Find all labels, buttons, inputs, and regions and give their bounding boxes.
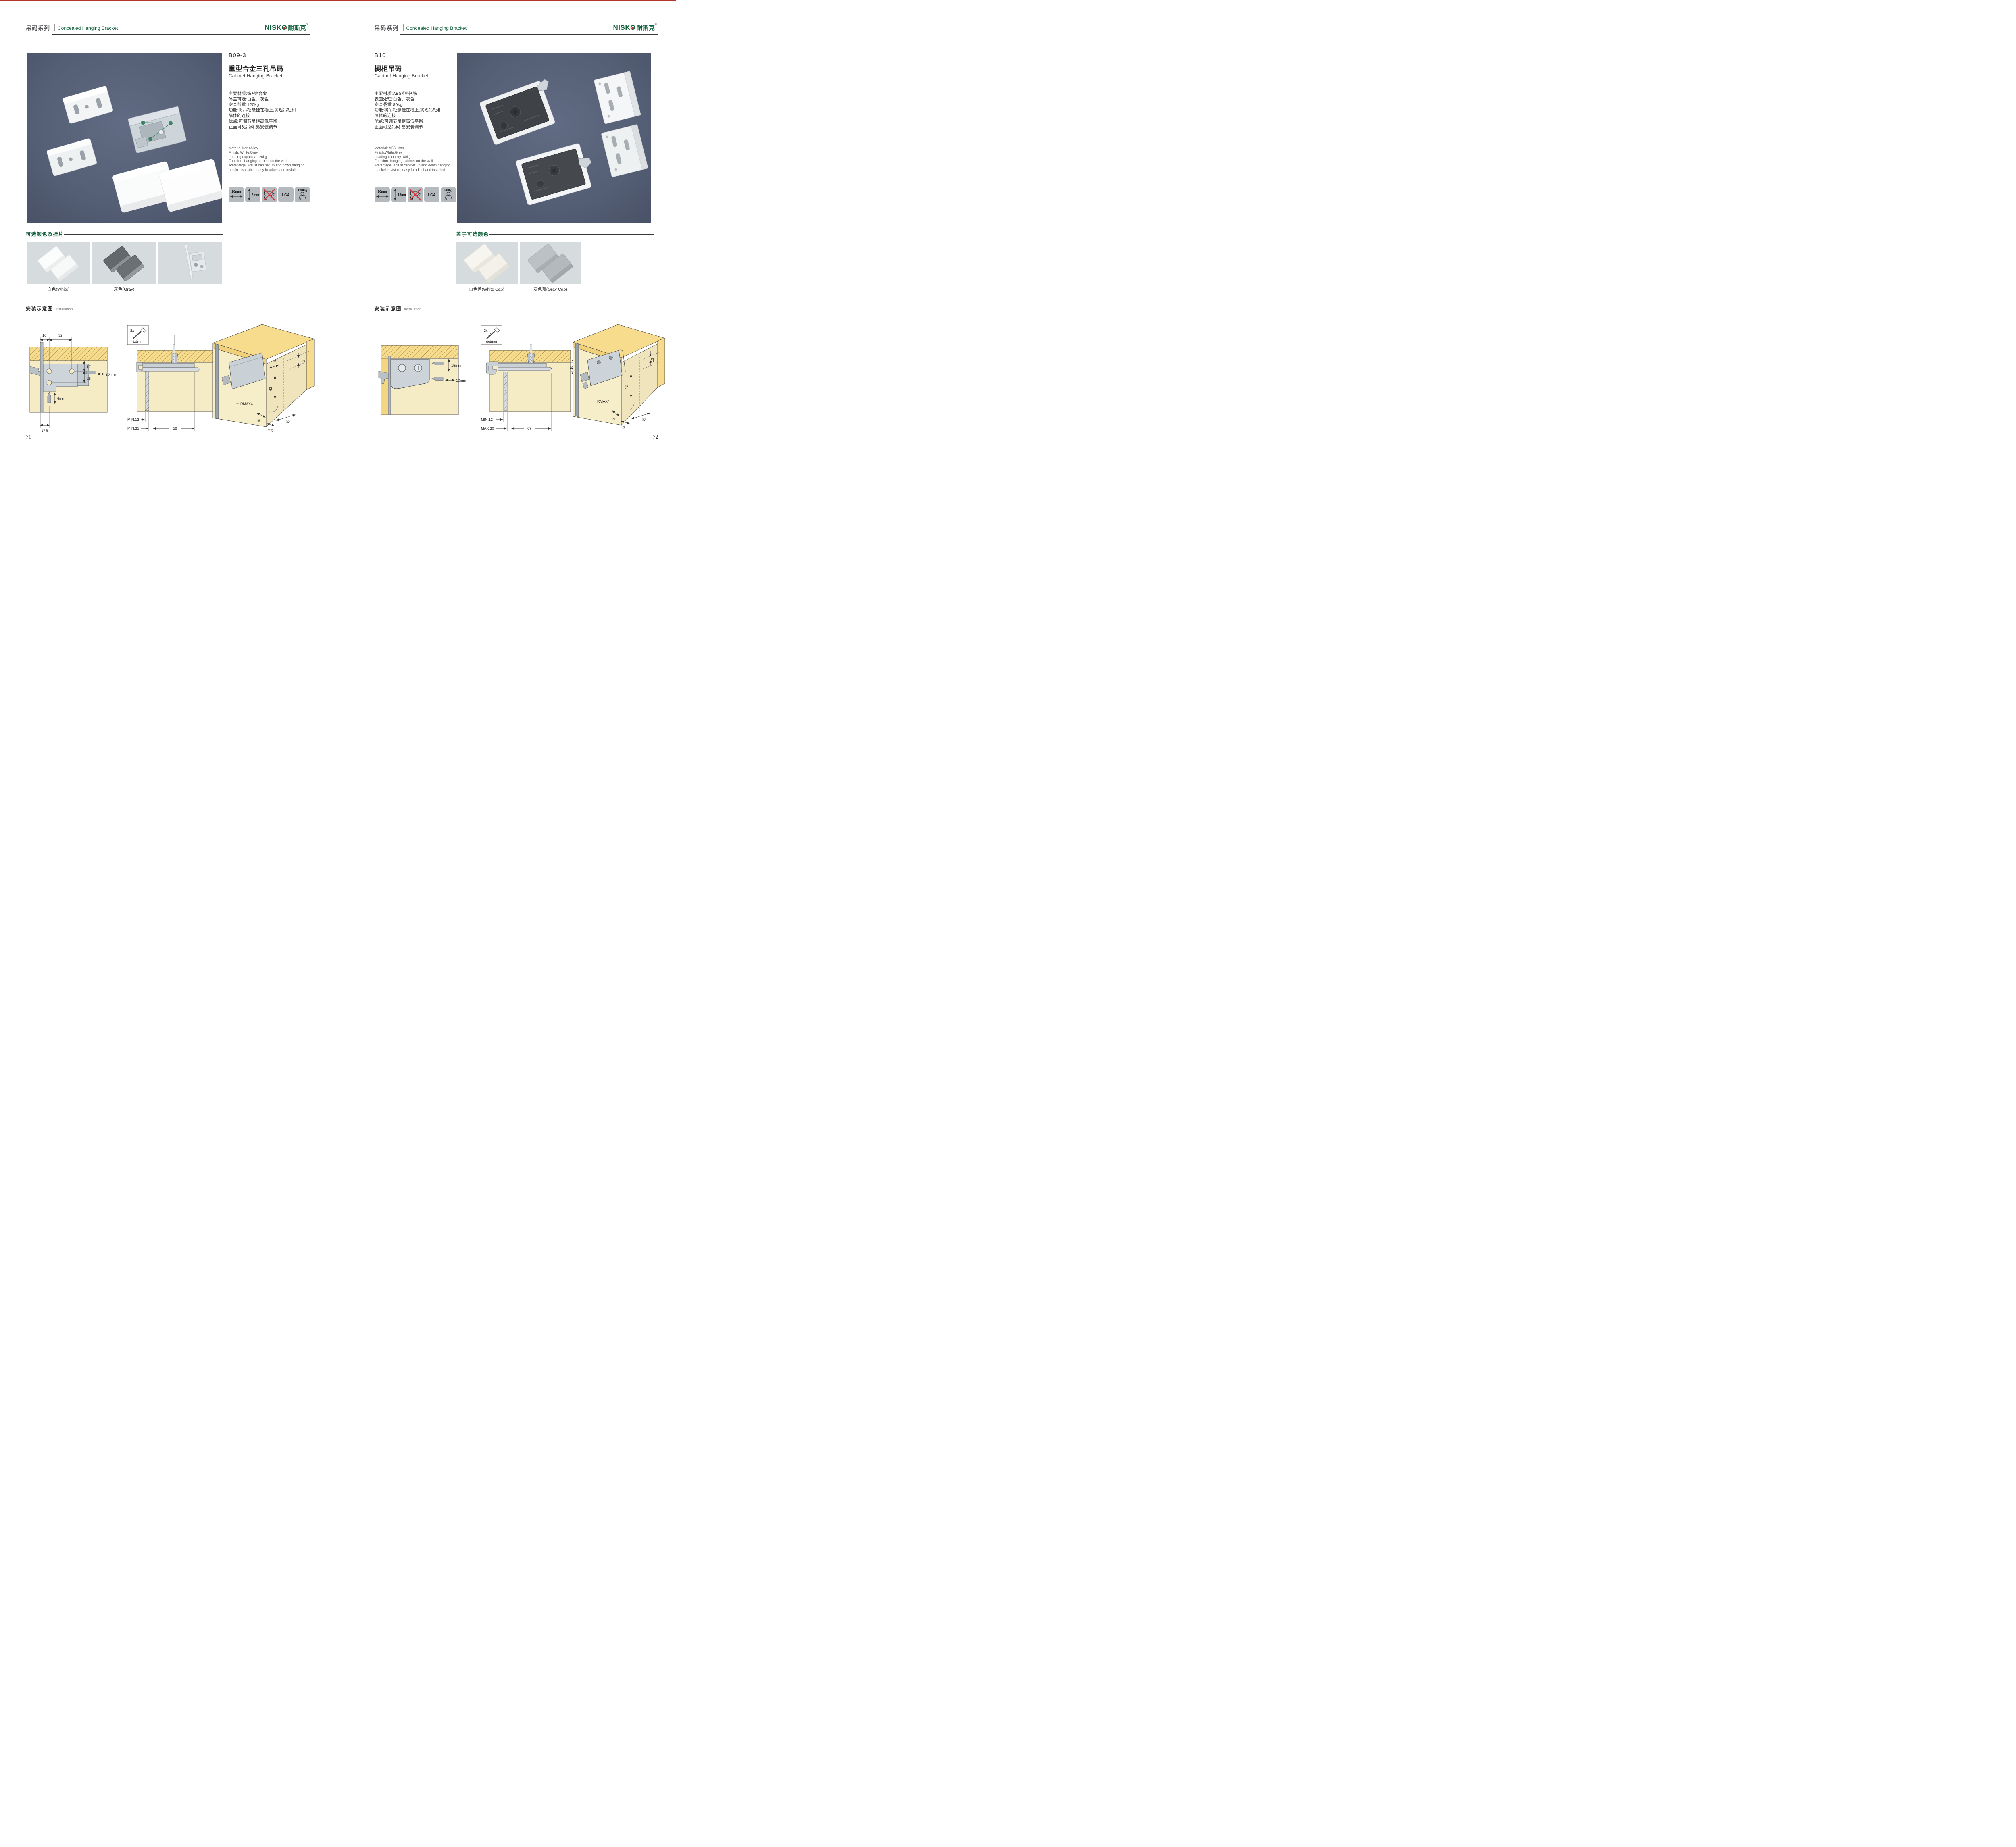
spec-icon-tile bbox=[262, 187, 277, 202]
product-specs-cn: 主要材质:铁+锌合金 外盖可选:白色、灰色 安全载重:120kg 功能:将吊柜悬… bbox=[229, 91, 296, 130]
product-name-en: Cabinet Hanging Bracket bbox=[375, 73, 428, 79]
spec-line: 优点:可调节吊柜高低平衡 bbox=[375, 119, 442, 125]
spec-line: 墙体的连接 bbox=[375, 113, 442, 119]
installation-diagram-side: 2x Φ4mm 12 MIN.12 bbox=[127, 320, 223, 441]
page-number: 71 bbox=[26, 434, 31, 440]
series-title-en: Concealed Hanging Bracket bbox=[58, 25, 118, 31]
product-specs-cn: 主要材质:ABS塑料+铁 表面处理:白色、灰色 安全载重:80kg 功能:将吊柜… bbox=[375, 91, 442, 130]
colors-section-rule bbox=[64, 234, 223, 235]
spec-line: Finish:White,Grey bbox=[375, 150, 450, 155]
spec-icon-tile bbox=[408, 187, 423, 202]
product-model: B10 bbox=[375, 52, 386, 59]
lga-icon: LGA bbox=[278, 187, 294, 202]
svg-text:15mm: 15mm bbox=[398, 193, 406, 197]
svg-text:MIN.12: MIN.12 bbox=[481, 418, 493, 422]
header-rule bbox=[52, 34, 310, 35]
series-title-cn: 吊码系列 bbox=[375, 24, 399, 32]
installation-diagram-front: 15mm 10mm bbox=[377, 320, 470, 441]
spec-icon-tile: LGA bbox=[424, 187, 439, 202]
installation-title-cn: 安装示意图 bbox=[375, 306, 402, 312]
spec-line: Function: hanging cabinet on the wall bbox=[229, 159, 304, 163]
spec-line: 主要材质:ABS塑料+铁 bbox=[375, 91, 442, 97]
brand-logo-en: NISKO bbox=[613, 24, 636, 31]
spec-line: 优点:可调节吊柜高低平衡 bbox=[229, 119, 296, 125]
catalog-spread: 吊码系列 Concealed Hanging Bracket NISKO耐斯克® bbox=[0, 0, 676, 462]
brand-logo-cn: 耐斯克 bbox=[637, 25, 655, 31]
spec-icon-row: 20mm 6mm bbox=[229, 187, 310, 202]
spec-line: Finish: White,Grey bbox=[229, 150, 304, 155]
installation-title-cn: 安装示意图 bbox=[26, 306, 53, 312]
spec-line: 正面可见吊码,易安装调节 bbox=[229, 125, 296, 130]
swatch-label: 白色(White) bbox=[27, 286, 90, 292]
back-panel bbox=[145, 371, 149, 411]
svg-text:67: 67 bbox=[527, 426, 531, 431]
spec-icon-tile: 10mm bbox=[375, 187, 390, 202]
registered-mark: ® bbox=[306, 23, 308, 26]
spec-icon-tile: 20mm bbox=[229, 187, 244, 202]
spec-icon-row: 10mm 15mm bbox=[375, 187, 456, 202]
svg-text:32: 32 bbox=[58, 333, 62, 337]
svg-text:17.5: 17.5 bbox=[41, 428, 48, 433]
svg-text:10mm: 10mm bbox=[377, 190, 387, 193]
svg-text:58: 58 bbox=[173, 426, 177, 431]
colors-section-rule bbox=[489, 234, 654, 235]
spec-line: 功能:将吊柜悬挂在墙上,实现吊柜和 bbox=[375, 108, 442, 113]
header-rule bbox=[400, 34, 658, 35]
swatch-label: 白色盖(White Cap) bbox=[456, 286, 518, 292]
section-divider bbox=[26, 302, 310, 302]
width-arrow-icon: 20mm bbox=[229, 187, 244, 202]
spec-icon-tile: 6mm bbox=[245, 187, 260, 202]
installation-heading: 安装示意图Installation bbox=[375, 305, 422, 312]
installation-title-en: Installation bbox=[404, 307, 421, 311]
svg-text:MIN.35: MIN.35 bbox=[127, 426, 139, 431]
spec-line: bracket is visible, easy to adjust and i… bbox=[375, 168, 450, 172]
spec-line: 墙体的连接 bbox=[229, 113, 296, 119]
svg-text:6mm: 6mm bbox=[57, 397, 65, 401]
product-photo-b09-3 bbox=[27, 53, 222, 223]
svg-text:42: 42 bbox=[625, 385, 629, 389]
svg-text:16: 16 bbox=[272, 359, 276, 363]
series-separator bbox=[403, 24, 404, 31]
svg-text:2x: 2x bbox=[130, 329, 134, 333]
height-arrow-icon: 15mm bbox=[391, 187, 406, 202]
load-capacity-icon: 120Kg bbox=[295, 187, 310, 202]
brand-logo: NISKO耐斯克® bbox=[264, 23, 308, 32]
spec-line: 表面处理:白色、灰色 bbox=[375, 97, 442, 102]
svg-text:RMAX4: RMAX4 bbox=[597, 399, 610, 404]
series-title-cn: 吊码系列 bbox=[26, 24, 50, 32]
spec-line: Advantage: Adjust cabinet up and down ha… bbox=[375, 163, 450, 168]
svg-text:MIN.12: MIN.12 bbox=[127, 418, 139, 422]
product-name-cn: 重型合金三孔吊码 bbox=[229, 63, 283, 73]
spec-icon-tile: LGA bbox=[278, 187, 294, 202]
series-separator bbox=[54, 24, 55, 31]
svg-text:MAX.30: MAX.30 bbox=[481, 426, 494, 431]
spec-line: 安全载重:120kg bbox=[229, 102, 296, 108]
svg-text:32: 32 bbox=[641, 418, 646, 422]
svg-text:16: 16 bbox=[42, 333, 46, 337]
svg-text:2x: 2x bbox=[484, 329, 488, 333]
svg-text:Φ4mm: Φ4mm bbox=[486, 340, 497, 344]
svg-text:17: 17 bbox=[621, 426, 625, 430]
product-name-cn: 橱柜吊码 bbox=[375, 63, 402, 73]
svg-text:13: 13 bbox=[650, 358, 654, 362]
no-drill-icon bbox=[262, 187, 277, 202]
back-panel bbox=[504, 372, 507, 411]
wall-rail-strip bbox=[215, 344, 219, 419]
svg-text:42: 42 bbox=[269, 387, 273, 391]
spec-line: Material:Iron+Alloy bbox=[229, 146, 304, 150]
spec-line: 安全载重:80kg bbox=[375, 102, 442, 108]
installation-diagram-side: 2x Φ4mm 18 MIN.12 bbox=[480, 320, 575, 441]
spec-line: 外盖可选:白色、灰色 bbox=[229, 97, 296, 102]
product-specs-en: Material:Iron+Alloy Finish: White,Grey L… bbox=[229, 146, 304, 172]
swatch-label: 灰色(Gray) bbox=[92, 286, 156, 292]
wall-rail-strip bbox=[40, 342, 43, 412]
svg-text:120Kg: 120Kg bbox=[298, 189, 307, 192]
svg-text:RMAX4: RMAX4 bbox=[240, 402, 253, 406]
svg-text:Φ4mm: Φ4mm bbox=[132, 340, 143, 344]
svg-text:17: 17 bbox=[87, 365, 91, 369]
width-arrow-icon: 10mm bbox=[375, 187, 390, 202]
spec-line: Loading capacity: 120kg bbox=[229, 155, 304, 159]
svg-text:6mm: 6mm bbox=[252, 193, 259, 197]
color-swatch-white-cap bbox=[456, 242, 518, 284]
swatch-label: 灰色盖(Gray Cap) bbox=[520, 286, 581, 292]
svg-text:15mm: 15mm bbox=[451, 364, 461, 368]
swatch-hanging-plate bbox=[158, 242, 222, 284]
product-name-en: Cabinet Hanging Bracket bbox=[229, 73, 282, 79]
spec-line: Material: ABS+iron bbox=[375, 146, 450, 150]
spec-line: 正面可见吊码,易安装调节 bbox=[375, 125, 442, 130]
wall-rail-strip bbox=[388, 356, 391, 415]
spec-line: Function: hanging cabinet on the wall bbox=[375, 159, 450, 163]
colors-section-title: 可选颜色及挂片 bbox=[26, 231, 64, 237]
spec-line: Advantage: Adjust cabinet up and down ha… bbox=[229, 163, 304, 168]
svg-text:25: 25 bbox=[87, 376, 91, 381]
catalog-page-right: 吊码系列 Concealed Hanging Bracket NISKO耐斯克®… bbox=[338, 0, 677, 462]
series-title-en: Concealed Hanging Bracket bbox=[406, 25, 467, 31]
catalog-page-left: 吊码系列 Concealed Hanging Bracket NISKO耐斯克® bbox=[0, 0, 338, 462]
svg-text:LGA: LGA bbox=[282, 193, 290, 197]
svg-text:20mm: 20mm bbox=[231, 190, 241, 193]
page-number: 72 bbox=[646, 434, 658, 440]
no-drill-icon bbox=[408, 187, 423, 202]
bracket-rail bbox=[498, 363, 546, 367]
height-arrow-icon: 6mm bbox=[245, 187, 260, 202]
spec-line: 功能:将吊柜悬挂在墙上,实现吊柜和 bbox=[229, 108, 296, 113]
section-divider bbox=[375, 302, 658, 302]
svg-text:20mm: 20mm bbox=[106, 372, 116, 376]
svg-text:19: 19 bbox=[611, 417, 615, 421]
lga-icon: LGA bbox=[424, 187, 439, 202]
installation-title-en: Installation bbox=[56, 307, 73, 311]
svg-text:80Kg: 80Kg bbox=[444, 189, 452, 192]
spec-line: Loading capacity: 80kg bbox=[375, 155, 450, 159]
bracket-rail bbox=[143, 363, 194, 368]
color-swatch-gray-cap bbox=[520, 242, 581, 284]
wall-rail-strip bbox=[575, 343, 579, 417]
installation-diagram-front: 20mm 16 32 17 25 6mm 17.5 bbox=[24, 320, 121, 441]
color-swatch-gray bbox=[92, 242, 156, 284]
spec-icon-tile: 80Kg bbox=[441, 187, 456, 202]
installation-heading: 安装示意图Installation bbox=[26, 305, 73, 312]
registered-mark: ® bbox=[655, 23, 657, 26]
svg-text:17: 17 bbox=[301, 360, 305, 364]
product-photo-b10 bbox=[457, 53, 651, 223]
product-specs-en: Material: ABS+iron Finish:White,Grey Loa… bbox=[375, 146, 450, 172]
svg-text:10mm: 10mm bbox=[456, 379, 466, 383]
brand-logo: NISKO耐斯克® bbox=[613, 23, 657, 32]
installation-diagram-perspective: 13 42 RMAX4 19 17 32 bbox=[571, 320, 667, 437]
brand-logo-cn: 耐斯克 bbox=[288, 25, 306, 31]
spec-icon-tile: 15mm bbox=[391, 187, 406, 202]
brand-logo-en: NISKO bbox=[264, 24, 287, 31]
colors-section-title: 盖子可选颜色 bbox=[456, 231, 489, 237]
spec-line: 主要材质:铁+锌合金 bbox=[229, 91, 296, 97]
installation-diagram-perspective: 16 17 42 RMAX4 16 32 17.5 bbox=[210, 320, 317, 439]
load-capacity-icon: 80Kg bbox=[441, 187, 456, 202]
color-swatch-white bbox=[27, 242, 90, 284]
product-model: B09-3 bbox=[229, 52, 246, 59]
svg-text:17.5: 17.5 bbox=[266, 429, 273, 433]
svg-text:LGA: LGA bbox=[428, 193, 435, 197]
svg-text:16: 16 bbox=[256, 419, 260, 423]
svg-text:32: 32 bbox=[286, 420, 290, 424]
spec-line: bracket is visible, easy to adjust and i… bbox=[229, 168, 304, 172]
spec-icon-tile: 120Kg bbox=[295, 187, 310, 202]
